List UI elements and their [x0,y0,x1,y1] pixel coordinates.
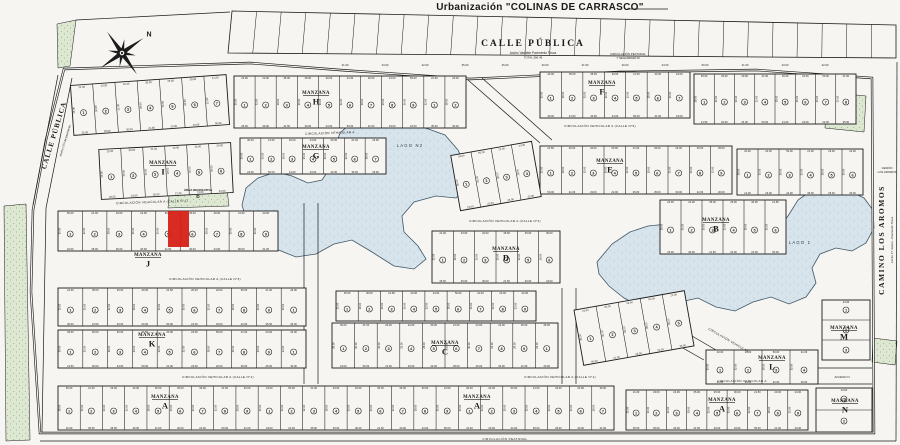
lot-depth: 30.00 [58,345,62,352]
street-label-circulacion: CIRCULACIÓN VEHICULAR A (CALLE N°2) [469,218,541,223]
lot-dimension: 50.00 [772,250,779,254]
lot-depth: 30.00 [323,152,327,159]
lot-depth: 28.00 [324,404,328,411]
lot-dimension: 30.00 [67,322,74,326]
lot-dimension: 20.00 [191,288,198,292]
lot-dimension: 23.00 [590,190,597,194]
lot-dimension: 21.00 [175,191,182,195]
lot-depth: 30.00 [458,404,462,411]
lot-dimension: 25.00 [266,364,273,368]
lot-depth: 30.00 [183,99,187,106]
lot-dimension: 23.00 [828,149,835,153]
lot-depth: 28.00 [360,98,364,105]
lot-depth: 28.00 [204,227,208,234]
lot-depth: 32.00 [107,303,111,310]
lot-depth: 35.00 [354,342,358,349]
lot-number: 6 [220,169,222,173]
lot-depth: 32.00 [206,303,210,310]
lot-number: 9 [268,350,270,354]
street-dimension: 21.50 [582,63,589,67]
lot-depth: 28.00 [502,404,506,411]
lot-number: 7 [825,100,827,104]
lot-depth: 30.00 [734,95,738,102]
lot-dimension: 35.00 [241,364,248,368]
lot-depth: 28.00 [686,406,690,413]
lot-depth: 30.00 [496,253,500,260]
lot-number: 7 [478,347,480,351]
lot-depth: 30.00 [706,363,710,370]
lot-number: 8 [424,409,426,413]
lot-dimension: 35.00 [521,323,528,327]
lot-dimension: 35.00 [701,74,708,78]
lot-depth: 28.00 [231,303,235,310]
lot-dimension: 21.00 [843,74,850,78]
lot-number: 1 [468,409,470,413]
lot-dimension: 22.00 [355,386,362,390]
lot-number: 1 [546,347,548,351]
lot-dimension: 22.00 [241,322,248,326]
lot-dimension: 25.00 [590,72,597,76]
lot-depth: 30.00 [467,342,471,349]
lot-number: 5 [635,171,637,175]
lot-number: 2 [655,411,657,415]
lot-number: 1 [293,308,295,312]
lot-number: 8 [243,350,245,354]
lot-depth: 28.00 [147,404,151,411]
lot-dimension: 24.00 [408,323,415,327]
lot-number: 1 [550,171,552,175]
manzana-label-h-0-letter: H [313,97,320,107]
lot-number: 6 [736,411,738,415]
lot-depth: 32.00 [336,302,340,309]
street-dimension: 20.00 [622,63,629,67]
lot-dimension: 22.00 [331,170,338,174]
lot-number: 3 [788,173,790,177]
lot-dimension: 30.00 [247,138,254,142]
lot-number: 5 [557,409,559,413]
lot-depth: 30.00 [646,406,650,413]
lot-depth: 32.00 [124,404,128,411]
lot-dimension: 25.00 [452,124,459,128]
lot-depth: 35.00 [525,404,529,411]
lot-dimension: 21.00 [477,291,484,295]
manzana-label-b-5-letter: B [713,224,719,234]
street-label-calle-publica: CALLE PÚBLICA [481,37,585,49]
lot-dimension: 24.00 [193,122,200,126]
lot-depth: 32.00 [625,166,629,173]
lot-number: 9 [265,232,267,236]
lot-depth: 30.00 [402,98,406,105]
lot-number: 8 [502,307,504,311]
lot-dimension: 25.00 [721,74,728,78]
lot-depth: 28.00 [646,166,650,173]
lot-dimension: 35.00 [351,170,358,174]
lot-dimension: 21.50 [148,125,155,129]
lot-dimension: 25.00 [461,279,468,283]
lot-depth: 32.00 [625,91,629,98]
lot-number: 5 [635,96,637,100]
lot-dimension: 22.00 [123,82,130,86]
lot-dimension: 22.00 [430,364,437,368]
lot-number: 9 [720,171,722,175]
lot-number: 5 [328,103,330,107]
manzana-label-d-6-letter: D [503,253,509,263]
lot-number: 1 [433,103,435,107]
lot-depth: 35.00 [58,303,62,310]
lot-dimension: 23.00 [499,291,506,295]
lot-number: 6 [851,173,853,177]
lot-dimension: 24.00 [216,288,223,292]
manzana-label-c-9-letter: C [442,347,448,357]
lot-dimension: 23.00 [191,364,198,368]
lot-dimension: 50.00 [347,124,354,128]
lot-dimension: 24.00 [546,279,553,283]
street-sublabel: Ancho 17 metros - Pavimento Tosca [890,216,894,263]
lot-dimension: 21.00 [263,247,270,251]
lot-dimension: 21.50 [268,138,275,142]
lot-dimension: 50.00 [142,364,149,368]
lot-depth: 28.00 [647,91,651,98]
lot-dimension: 25.00 [372,170,379,174]
lot-number: 6 [548,258,550,262]
lot-number: 2 [747,368,749,372]
street-dimension: 50.00 [702,63,709,67]
manzana-label-a-12-letter: A [162,401,169,411]
lot-dimension: 21.50 [600,426,607,430]
lot-dimension: 50.00 [153,192,160,196]
lot-depth: 28.00 [138,102,142,109]
lot-depth: 35.00 [795,95,799,102]
manzana-label-n-15-letter: N [842,405,849,415]
lot-depth: 32.00 [213,404,217,411]
lot-dimension: 22.00 [849,149,856,153]
lot-dimension: 20.00 [305,124,312,128]
lot-dimension: 24.00 [131,193,138,197]
lot-dimension: 20.00 [166,330,173,334]
lot-dimension: 22.00 [511,426,518,430]
lot-depth: 35.00 [681,223,685,230]
lot-dimension: 21.00 [191,322,198,326]
lot-depth: 30.00 [102,404,106,411]
lot-depth: 30.00 [547,404,551,411]
lot-dimension: 30.00 [688,250,695,254]
street-label-peatonal: Y SEGURIDAD M [616,56,640,60]
street-label-circulacion: CIRCULACIÓN VEHICULAR A (CALLE N°5) [564,123,636,128]
street-label-circulacion: CIRCULACIÓN VEHICULAR A (CALLE N°1) [524,374,596,379]
block: 122.0030.0035.00235.0021.5030.00325.0020… [58,288,306,326]
lot-number: 7 [479,307,481,311]
lot-dimension: 24.00 [194,144,201,148]
lot-number: 7 [678,96,680,100]
lot-dimension: 20.00 [263,211,270,215]
lot-dimension: 22.00 [773,380,780,384]
lot-depth: 32.00 [182,345,186,352]
lot-depth: 28.00 [660,223,664,230]
lot-dimension: 50.00 [455,291,462,295]
lot-depth: 32.00 [569,404,573,411]
lot-number: 9 [446,409,448,413]
lot-number: 8 [777,411,779,415]
lot-dimension: 21.50 [762,74,769,78]
compass-north-label: N [147,32,152,39]
lot-depth: 28.00 [236,404,240,411]
lot-dimension: 35.00 [709,200,716,204]
lot-depth: 28.00 [453,253,457,260]
lot-dimension: 20.00 [590,114,597,118]
lot-dimension: 22.00 [822,120,829,124]
lot-number: 6 [455,347,457,351]
lot-dimension: 23.00 [333,386,340,390]
lot-depth: 35.00 [787,406,791,413]
lot-number: 1 [110,175,112,179]
green-area [4,204,30,441]
lot-depth: 32.00 [423,98,427,105]
map-title: Urbanización "COLINAS DE CARRASCO" [436,2,643,13]
lot-dimension: 24.00 [191,330,198,334]
block: 122.0030.0032.00235.0021.5028.00325.0020… [540,72,690,118]
lot-depth: 30.00 [157,345,161,352]
lot-dimension: 25.00 [177,386,184,390]
lot-depth: 28.00 [413,404,417,411]
lot-number: 3 [313,409,315,413]
lot-dimension: 30.00 [734,390,741,394]
lot-dimension: 50.00 [216,330,223,334]
lot-number: 1 [69,232,71,236]
lot-dimension: 21.50 [222,386,229,390]
lot-depth: 35.00 [157,303,161,310]
lot-dimension: 35.00 [82,130,89,134]
lot-dimension: 21.50 [547,146,554,150]
lot-dimension: 30.00 [751,200,758,204]
lot-dimension: 20.00 [170,124,177,128]
lot-dimension: 21.00 [633,146,640,150]
lot-dimension: 22.00 [262,76,269,80]
lot-depth: 32.00 [424,302,428,309]
lot-dimension: 21.00 [453,323,460,327]
lot-number: 5 [753,228,755,232]
lot-dimension: 22.00 [675,146,682,150]
lot-dimension: 22.00 [673,390,680,394]
lot-depth: 28.00 [445,98,449,105]
lot-dimension: 21.50 [709,250,716,254]
lot-number: 9 [524,307,526,311]
lot-dimension: 24.00 [741,120,748,124]
lot-dimension: 35.00 [807,191,814,195]
lot-dimension: 35.00 [843,120,850,124]
lot-dimension: 21.50 [212,75,219,79]
block: 121.0035.0035.00223.0025.0030.00322.0030… [626,390,808,430]
lot-dimension: 21.50 [701,120,708,124]
lot-depth: 30.00 [58,227,62,234]
lot-depth: 35.00 [842,168,846,175]
lot-depth: 35.00 [790,363,794,370]
lot-depth: 35.00 [256,303,260,310]
lot-number: 1 [442,258,444,262]
lot-dimension: 22.00 [688,200,695,204]
lot-number: 7 [678,171,680,175]
lot-dimension: 24.00 [433,291,440,295]
lot-depth: 28.00 [106,227,110,234]
lot-dimension: 35.00 [694,390,701,394]
lot-depth: 32.00 [391,404,395,411]
lot-dimension: 22.00 [611,190,618,194]
lot-dimension: 23.00 [310,170,317,174]
lot-number: 6 [804,100,806,104]
area-recreativa-label: ÁREA RECREATIVA [184,187,213,192]
street-label-circulacion: CIRCULACIÓN VEHICULAR A (CALLE N°1) [182,374,254,379]
lot-depth: 35.00 [668,166,672,173]
lot-dimension: 35.00 [155,386,162,390]
lot-dimension: 30.00 [741,74,748,78]
lot-dimension: 35.00 [633,190,640,194]
lot-depth: 35.00 [160,100,164,107]
street-dimension: 23.00 [782,63,789,67]
lot-dimension: 21.00 [289,170,296,174]
lot-dimension: 20.00 [714,426,721,430]
block: 121.0035.0035.00223.0025.0030.00322.0030… [70,75,230,136]
street-sublabel: Ancho Variable Pavimento Tosca [510,51,557,55]
lot-dimension: 20.00 [655,72,662,76]
lot-dimension: 21.00 [466,426,473,430]
highlighted-lot [168,211,189,247]
lot-dimension: 25.00 [654,190,661,194]
lot-depth: 35.00 [347,404,351,411]
lot-dimension: 25.00 [305,76,312,80]
lot-number: 7 [201,409,203,413]
lot-number: 6 [457,307,459,311]
lot-dimension: 30.00 [422,386,429,390]
lot-dimension: 23.00 [654,146,661,150]
lot-number: 1 [719,368,721,372]
lot-depth: 28.00 [512,342,516,349]
lot-dimension: 50.00 [268,170,275,174]
lot-dimension: 23.00 [266,330,273,334]
block: 150.0022.0028.00221.0035.0035.00323.0025… [58,386,614,430]
lot-depth: 32.00 [540,166,544,173]
lot-number: 8 [699,171,701,175]
lot-depth: 35.00 [132,345,136,352]
lot-depth: 30.00 [94,105,98,112]
lot-dimension: 25.00 [333,426,340,430]
lot-dimension: 30.00 [546,231,553,235]
block: 150.0022.0030.00221.0035.0032.00323.0025… [58,211,278,251]
lot-dimension: 30.00 [340,323,347,327]
lot-number: 7 [216,232,218,236]
lot-depth: 32.00 [480,404,484,411]
lot-number: 6 [179,409,181,413]
lot-depth: 30.00 [377,342,381,349]
lot-dimension: 21.50 [694,426,701,430]
lot-number: 1 [293,350,295,354]
lot-dimension: 50.00 [222,426,229,430]
lot-depth: 32.00 [116,103,120,110]
lot-number: 5 [784,100,786,104]
lot-depth: 30.00 [402,302,406,309]
lot-depth: 30.00 [121,169,125,176]
lot-number: 5 [830,173,832,177]
lot-dimension: 23.00 [476,323,483,327]
lot-depth: 30.00 [182,303,186,310]
lot-depth: 28.00 [206,345,210,352]
lot-dimension: 21.00 [774,426,781,430]
lot-dimension: 25.00 [189,211,196,215]
lot-depth: 35.00 [758,168,762,175]
lot-number: 2 [90,409,92,413]
lot-dimension: 21.00 [744,191,751,195]
lot-number: 3 [387,347,389,351]
lot-dimension: 21.00 [88,386,95,390]
lot-dimension: 22.00 [410,124,417,128]
lot-dimension: 20.00 [730,250,737,254]
note-acceso: ACCESO N [834,375,849,379]
lot-dimension: 50.00 [215,121,222,125]
block: 121.0035.0032.00223.0025.0028.00322.0030… [432,231,560,283]
street-dimension: 25.00 [502,63,509,67]
lot-dimension: 21.50 [283,124,290,128]
lot-number: 3 [119,308,121,312]
lot-dimension: 50.00 [611,146,618,150]
lot-dimension: 24.00 [142,322,149,326]
lot-dimension: 30.00 [675,190,682,194]
lot-depth: 35.00 [582,91,586,98]
lot-number: 3 [113,409,115,413]
lot-dimension: 24.00 [199,426,206,430]
lot-depth: 35.00 [80,404,84,411]
lot-number: 7 [218,350,220,354]
lot-depth: 28.00 [365,152,369,159]
lot-depth: 30.00 [82,303,86,310]
lot-number: 5 [527,258,529,262]
lot-dimension: 50.00 [511,386,518,390]
lot-dimension: 23.00 [452,76,459,80]
lot-dimension: 21.50 [754,390,761,394]
lot-dimension: 30.00 [214,211,221,215]
lot-dimension: 24.00 [734,426,741,430]
lot-depth: 32.00 [754,95,758,102]
lot-dimension: 30.00 [366,291,373,295]
lot-depth: 35.00 [229,227,233,234]
lot-dimension: 25.00 [107,149,114,153]
lot-dimension: 21.00 [439,231,446,235]
lot-dimension: 25.00 [476,364,483,368]
lot-depth: 32.00 [666,406,670,413]
street-dimension: 24.00 [662,63,669,67]
lot-dimension: 30.00 [326,76,333,80]
lot-number: 6 [354,157,356,161]
lot-number: 1 [342,347,344,351]
lot-dimension: 25.00 [290,322,297,326]
street-label-camino-los-aromos: CAMINO LOS AROMOS [877,185,886,295]
lot-number: 9 [246,409,248,413]
lot-dimension: 21.50 [92,322,99,326]
lot-dimension: 25.00 [116,247,123,251]
lot-depth: 35.00 [99,170,103,177]
lot-dimension: 25.00 [543,323,550,327]
lot-dimension: 35.00 [88,426,95,430]
lot-depth: 28.00 [762,363,766,370]
lot-number: 6 [580,409,582,413]
lot-number: 5 [716,411,718,415]
lot-dimension: 25.00 [117,288,124,292]
lot-depth: 28.00 [561,91,565,98]
lot-dimension: 25.00 [104,129,111,133]
lot-number: 7 [218,308,220,312]
lot-number: 6 [193,103,195,107]
lot-depth: 30.00 [779,168,783,175]
lot-dimension: 30.00 [189,77,196,81]
lot-depth: 32.00 [281,345,285,352]
street-dimension: 22.00 [822,63,829,67]
